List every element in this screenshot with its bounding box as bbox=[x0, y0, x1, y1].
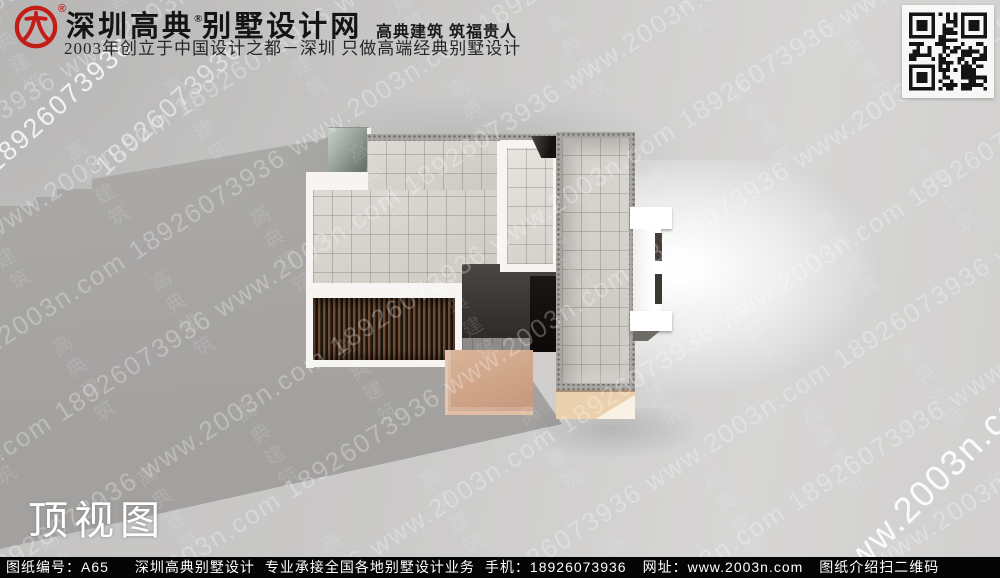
pergola-frame bbox=[306, 291, 462, 367]
pergola-wood-slats bbox=[313, 298, 455, 360]
drawing-number-label: 图纸编号： bbox=[6, 557, 81, 578]
entry-steps-wedge bbox=[556, 390, 635, 419]
middle-roof-strip-frame bbox=[500, 140, 560, 272]
balcony-bottom-ledge bbox=[630, 311, 672, 331]
dark-passage bbox=[530, 276, 557, 352]
logo-glyph bbox=[13, 4, 59, 50]
right-wing-shading bbox=[562, 138, 629, 384]
balcony-top-ledge bbox=[630, 207, 672, 229]
footer-info-bar: 图纸编号：A65深圳高典别墅设计专业承接全国各地别墅设计业务手机：1892607… bbox=[0, 557, 1000, 578]
brand-subtitle: 2003年创立于中国设计之都－深圳 只做高端经典别墅设计 bbox=[64, 34, 521, 59]
view-title-label: 顶视图 bbox=[28, 488, 166, 546]
title-registered-mark: ® bbox=[194, 13, 202, 25]
qr-code bbox=[902, 5, 994, 98]
roof-tiles-upper bbox=[367, 141, 497, 193]
balcony-window-slit-2 bbox=[655, 274, 662, 304]
skylight-glass-box bbox=[328, 127, 371, 174]
footer-phone-value: 18926073936 bbox=[530, 557, 627, 578]
footer-company: 深圳高典别墅设计 bbox=[135, 557, 255, 578]
middle-roof-strip-tiles bbox=[507, 148, 553, 264]
balcony-window-slit-1 bbox=[655, 233, 662, 261]
footer-website-label: 网址： bbox=[643, 557, 688, 578]
tan-terrace-floor bbox=[445, 350, 533, 415]
header-banner: ® 深圳高典®别墅设计网 高典建筑 筑福贵人 2003年创立于中国设计之都－深圳… bbox=[0, 0, 1000, 60]
footer-service: 专业承接全国各地别墅设计业务 bbox=[265, 557, 475, 578]
entry-steps-highlight bbox=[556, 392, 635, 419]
parapet-step-top-left bbox=[306, 172, 368, 192]
logo-registered-mark: ® bbox=[58, 3, 66, 15]
drawing-number-value: A65 bbox=[81, 557, 109, 578]
company-logo-seal bbox=[13, 4, 59, 50]
render-page: 18926073936 www.2003n.com 18926073936 ww… bbox=[0, 0, 1000, 578]
qr-code-modules bbox=[909, 12, 987, 91]
footer-qr-note: 图纸介绍扫二维码 bbox=[819, 557, 939, 578]
footer-phone-label: 手机： bbox=[485, 557, 530, 578]
footer-website-value: www.2003n.com bbox=[688, 557, 804, 578]
